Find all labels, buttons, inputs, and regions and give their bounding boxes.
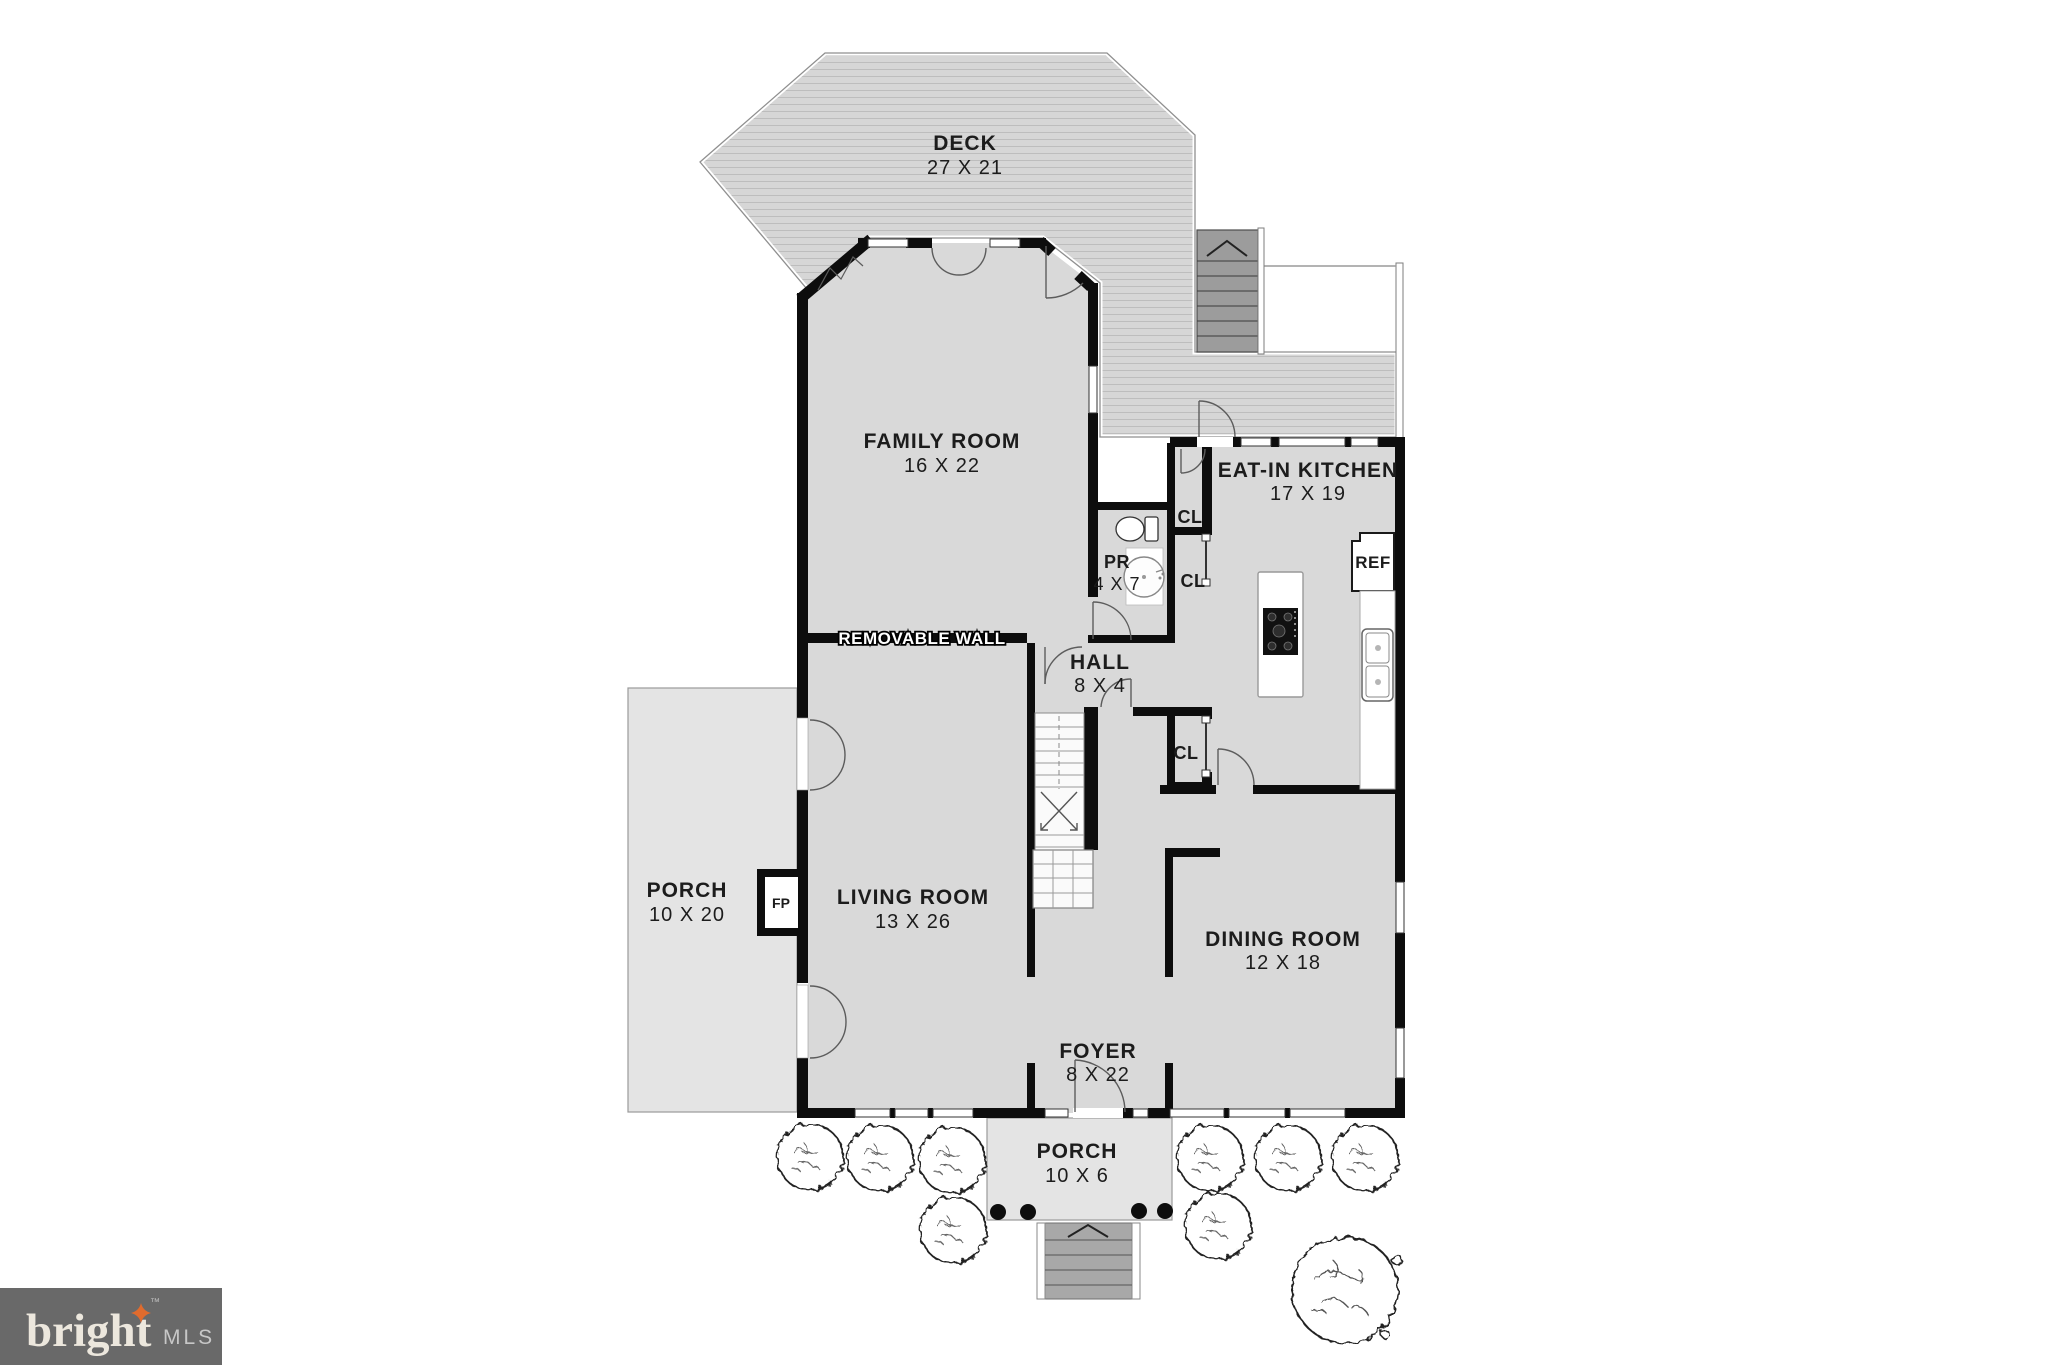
hall-dims: 8 X 4 <box>1074 675 1126 697</box>
deck-rail <box>1396 263 1403 439</box>
interior-stairs <box>1033 713 1093 908</box>
family-room-label: FAMILY ROOM <box>864 430 1021 453</box>
bush-icon <box>920 1197 986 1263</box>
front-porch-label: PORCH <box>1037 1140 1118 1163</box>
cooktop-icon <box>1263 608 1298 655</box>
closet-label: CL <box>1178 507 1203 527</box>
dining-room-dims: 12 X 18 <box>1245 952 1321 974</box>
fireplace-label: FP <box>772 895 790 911</box>
bush-icon <box>919 1127 985 1193</box>
floor-plan-page: DECK 27 X 21 FAMILY ROOM 16 X 22 EAT-IN … <box>0 0 2048 1365</box>
foyer-label: FOYER <box>1059 1040 1136 1063</box>
brand-tm: ™ <box>150 1297 160 1308</box>
foyer-dims: 8 X 22 <box>1066 1064 1130 1086</box>
bush-icon <box>847 1125 913 1191</box>
side-porch-dims: 10 X 20 <box>649 904 725 926</box>
brightmls-watermark: bright ™ MLS <box>0 1288 222 1365</box>
closet-label: CL <box>1174 743 1199 763</box>
family-room-dims: 16 X 22 <box>904 455 980 477</box>
deck-dims: 27 X 21 <box>927 157 1003 179</box>
bush-icon <box>1177 1125 1243 1191</box>
refrigerator-label: REF <box>1355 553 1391 572</box>
living-room-label: LIVING ROOM <box>837 886 989 909</box>
floor-plan-canvas: DECK 27 X 21 FAMILY ROOM 16 X 22 EAT-IN … <box>0 0 2048 1365</box>
powder-room-label: PR <box>1104 552 1130 572</box>
bush-icon <box>1332 1125 1398 1191</box>
bush-icon <box>777 1124 843 1190</box>
kitchen-counter <box>1360 591 1395 789</box>
stairs-winder <box>1033 850 1093 908</box>
toilet-icon <box>1116 517 1158 541</box>
closet-label: CL <box>1181 571 1206 591</box>
front-porch-dims: 10 X 6 <box>1045 1165 1109 1187</box>
bush-icon <box>1255 1125 1321 1191</box>
brand-mls: MLS <box>163 1326 215 1349</box>
kitchen-island <box>1258 572 1303 697</box>
front-steps <box>1037 1223 1140 1299</box>
bush-icon <box>1185 1193 1251 1259</box>
powder-room-dims: 4 X 7 <box>1093 574 1140 594</box>
sink-icon <box>1362 629 1393 701</box>
kitchen-dims: 17 X 19 <box>1270 483 1346 505</box>
dining-room-label: DINING ROOM <box>1205 928 1361 951</box>
void-notch <box>1092 443 1170 505</box>
side-porch-label: PORCH <box>647 879 728 902</box>
hall-label: HALL <box>1070 651 1130 674</box>
deck-label: DECK <box>933 132 997 155</box>
removable-wall-label: REMOVABLE WALL <box>838 629 1005 648</box>
kitchen-label: EAT-IN KITCHEN <box>1218 459 1398 482</box>
living-room-dims: 13 X 26 <box>875 911 951 933</box>
deck-stairs <box>1197 228 1264 354</box>
tree-icon <box>1292 1237 1402 1343</box>
